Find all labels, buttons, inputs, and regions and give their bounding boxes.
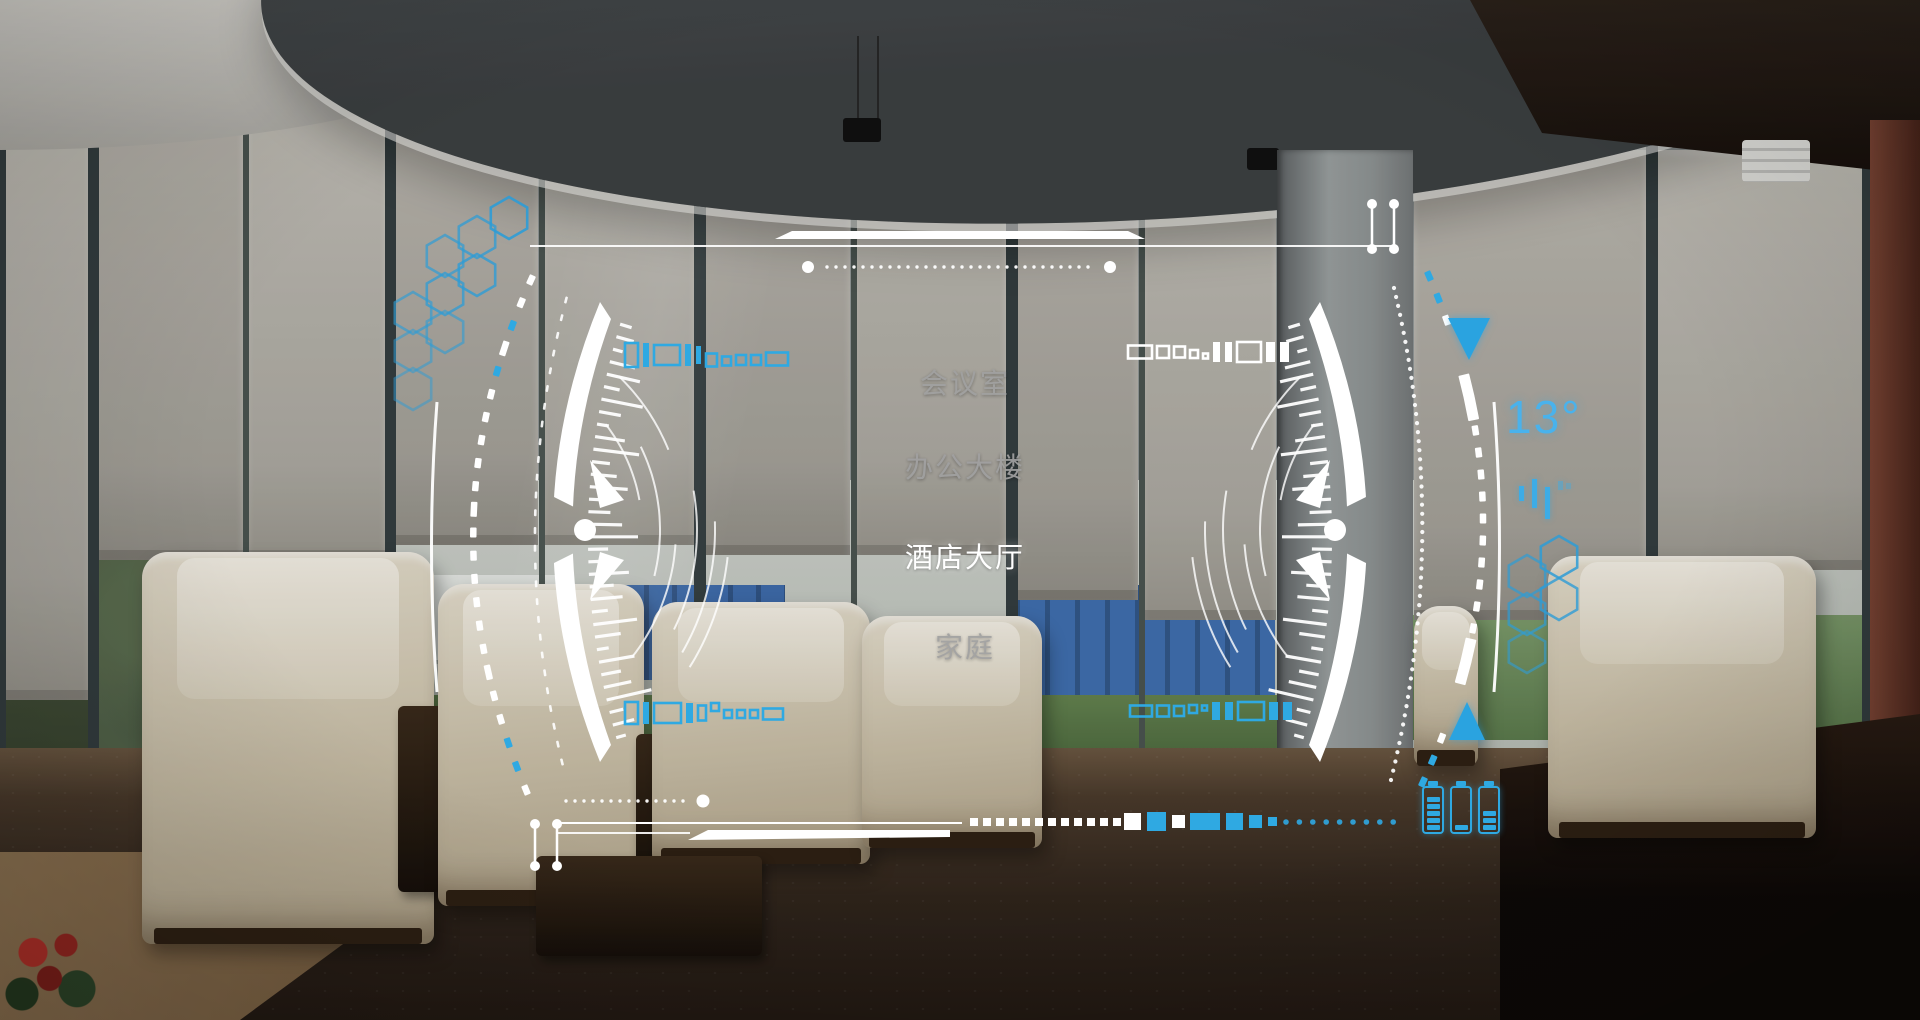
battery-status-group: [1422, 772, 1512, 834]
scene-option-home[interactable]: 家庭: [845, 626, 1085, 660]
battery-level: [1483, 791, 1496, 830]
signal-bar: [1545, 487, 1550, 519]
signal-bar: [1532, 479, 1537, 508]
signal-bar: [1519, 486, 1524, 501]
battery-icon: [1478, 786, 1500, 834]
battery-level: [1455, 791, 1468, 830]
smart-home-hud-screen: 会议室 办公大楼 酒店大厅 家庭 13°: [0, 0, 1920, 1020]
scene-option-office-building[interactable]: 办公大楼: [845, 446, 1085, 480]
signal-bars-icon: [1519, 478, 1579, 524]
battery-icon: [1422, 786, 1444, 834]
scene-option-hotel-lobby[interactable]: 酒店大厅: [845, 536, 1085, 570]
scroll-up-button triangle-up-icon[interactable]: [1449, 702, 1485, 740]
battery-icon: [1450, 786, 1472, 834]
battery-level: [1427, 791, 1440, 830]
scroll-down-button triangle-down-icon[interactable]: [1448, 318, 1490, 360]
scene-menu: 会议室 办公大楼 酒店大厅 家庭: [845, 362, 1085, 672]
temperature-reading: 13°: [1506, 390, 1636, 444]
signal-bar: [1566, 483, 1571, 489]
signal-bar: [1558, 481, 1563, 490]
scene-option-meeting-room[interactable]: 会议室: [845, 362, 1085, 396]
